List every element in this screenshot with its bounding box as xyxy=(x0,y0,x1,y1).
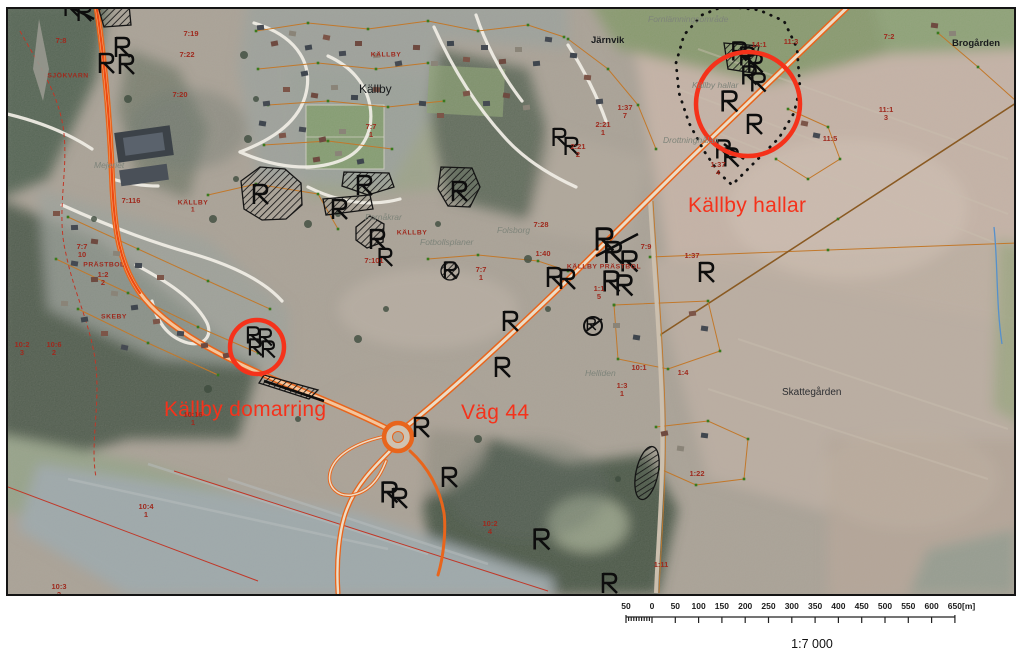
scale-number: 500 xyxy=(878,601,892,611)
scale-number: 650 xyxy=(948,601,962,611)
scale-number: 50 xyxy=(671,601,680,611)
map-scale-ratio: 1:7 000 xyxy=(791,637,833,651)
scale-number: 300 xyxy=(785,601,799,611)
scale-number: 0 xyxy=(650,601,655,611)
scale-number: 550 xyxy=(901,601,915,611)
map-canvas: Källby hallarKällby domarringVäg 44Källb… xyxy=(6,7,1016,596)
scale-bar-ticks xyxy=(600,613,1000,629)
scale-number: 150 xyxy=(715,601,729,611)
industrial-buildings xyxy=(114,125,174,186)
scale-number: 250 xyxy=(761,601,775,611)
scale-number: 450 xyxy=(855,601,869,611)
scale-bar-unit: [m] xyxy=(962,601,975,611)
scale-number: 100 xyxy=(692,601,706,611)
photo-grain xyxy=(8,9,1014,594)
scale-number: 350 xyxy=(808,601,822,611)
aerial-map-graphic xyxy=(8,9,1014,594)
page: { "map": { "region": "Källby aerial cada… xyxy=(0,0,1024,664)
scale-number: 400 xyxy=(831,601,845,611)
scale-bar: 5005010015020025030035040045050055060065… xyxy=(600,601,1024,663)
scale-number: 600 xyxy=(925,601,939,611)
scale-number: 50 xyxy=(621,601,630,611)
scale-number: 200 xyxy=(738,601,752,611)
